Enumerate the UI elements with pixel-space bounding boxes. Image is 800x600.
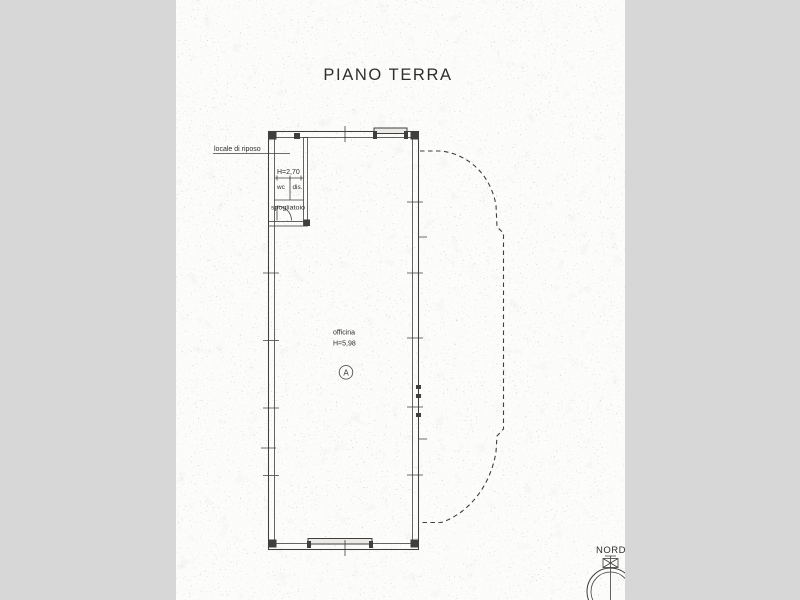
- label-workshop-height: H=5,98: [333, 341, 356, 348]
- label-small-height: H=2,70: [277, 169, 300, 176]
- label-wc: wc: [276, 184, 286, 191]
- paper-speckle-texture: [176, 0, 625, 600]
- label-changing-room: spogliatoio: [271, 205, 305, 212]
- page-title: PIANO TERRA: [323, 66, 452, 84]
- scanned-floorplan-page: PIANO TERRA: [0, 0, 800, 600]
- section-marker-letter: A: [343, 368, 349, 377]
- floorplan-drawing: PIANO TERRA: [0, 0, 800, 600]
- north-label: NORD: [596, 545, 626, 556]
- label-dis: dis.: [293, 184, 303, 191]
- label-rest-room: locale di riposo: [214, 146, 261, 153]
- label-workshop: officina: [333, 330, 355, 337]
